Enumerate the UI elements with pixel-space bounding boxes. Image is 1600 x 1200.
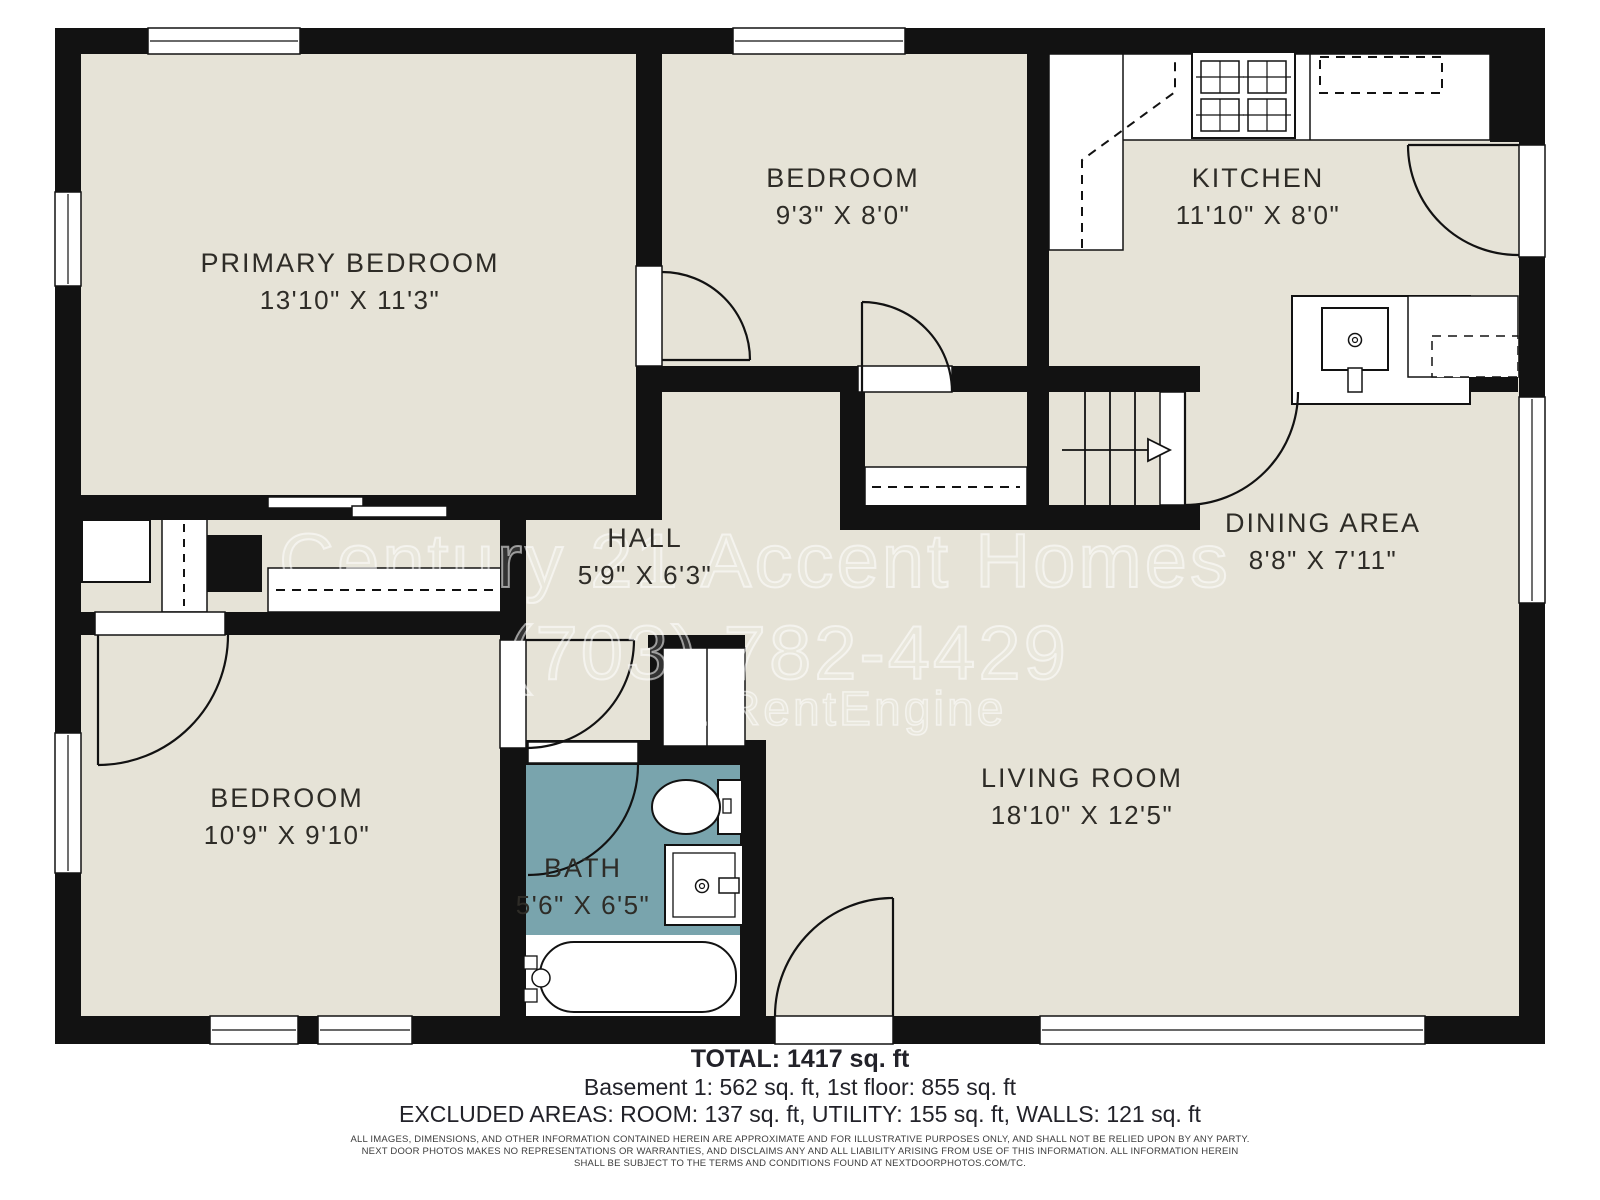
- room-dimensions: 18'10" X 12'5": [981, 800, 1183, 830]
- disclaimer-line-1: ALL IMAGES, DIMENSIONS, AND OTHER INFORM…: [0, 1134, 1600, 1146]
- disclaimer-line-3: SHALL BE SUBJECT TO THE TERMS AND CONDIT…: [0, 1158, 1600, 1170]
- area-breakdown: Basement 1: 562 sq. ft, 1st floor: 855 s…: [0, 1074, 1600, 1101]
- room-dimensions: 5'9" X 6'3": [578, 560, 713, 590]
- bathroom-sink-icon: [665, 845, 743, 925]
- room-label-bedroom-top: BEDROOM 9'3" X 8'0": [766, 163, 920, 230]
- watermark-tagline: a RentEngine: [680, 682, 1007, 737]
- room-label-kitchen: KITCHEN 11'10" X 8'0": [1176, 163, 1341, 230]
- room-name: BEDROOM: [204, 783, 370, 813]
- room-name: HALL: [578, 523, 713, 553]
- watermark-brand: Century 21 Accent Homes: [279, 518, 1231, 605]
- floor-plan-page: Century 21 Accent Homes (703) 782-4429 a…: [0, 0, 1600, 1200]
- room-name: LIVING ROOM: [981, 763, 1183, 793]
- bathtub-icon: [524, 942, 736, 1012]
- room-name: KITCHEN: [1176, 163, 1341, 193]
- excluded-areas: EXCLUDED AREAS: ROOM: 137 sq. ft, UTILIT…: [0, 1101, 1600, 1128]
- room-dimensions: 8'8" X 7'11": [1225, 545, 1421, 575]
- room-label-hall: HALL 5'9" X 6'3": [578, 523, 713, 590]
- room-label-primary-bedroom: PRIMARY BEDROOM 13'10" X 11'3": [200, 248, 499, 315]
- room-dimensions: 5'6" X 6'5": [516, 890, 651, 920]
- room-label-living-room: LIVING ROOM 18'10" X 12'5": [981, 763, 1183, 830]
- room-dimensions: 13'10" X 11'3": [200, 285, 499, 315]
- room-label-bedroom-2: BEDROOM 10'9" X 9'10": [204, 783, 370, 850]
- room-dimensions: 11'10" X 8'0": [1176, 200, 1341, 230]
- footer: TOTAL: 1417 sq. ft Basement 1: 562 sq. f…: [0, 1044, 1600, 1170]
- stove-icon: [1192, 52, 1295, 138]
- hall-closet-shelf: [865, 467, 1027, 507]
- room-label-bath: BATH 5'6" X 6'5": [516, 853, 651, 920]
- room-dimensions: 10'9" X 9'10": [204, 820, 370, 850]
- room-name: PRIMARY BEDROOM: [200, 248, 499, 278]
- room-name: BEDROOM: [766, 163, 920, 193]
- total-area: TOTAL: 1417 sq. ft: [0, 1044, 1600, 1074]
- room-name: BATH: [516, 853, 651, 883]
- toilet-icon: [652, 780, 742, 834]
- room-dimensions: 9'3" X 8'0": [766, 200, 920, 230]
- room-name: DINING AREA: [1225, 508, 1421, 538]
- disclaimer-line-2: NEXT DOOR PHOTOS MAKES NO REPRESENTATION…: [0, 1146, 1600, 1158]
- room-label-dining-area: DINING AREA 8'8" X 7'11": [1225, 508, 1421, 575]
